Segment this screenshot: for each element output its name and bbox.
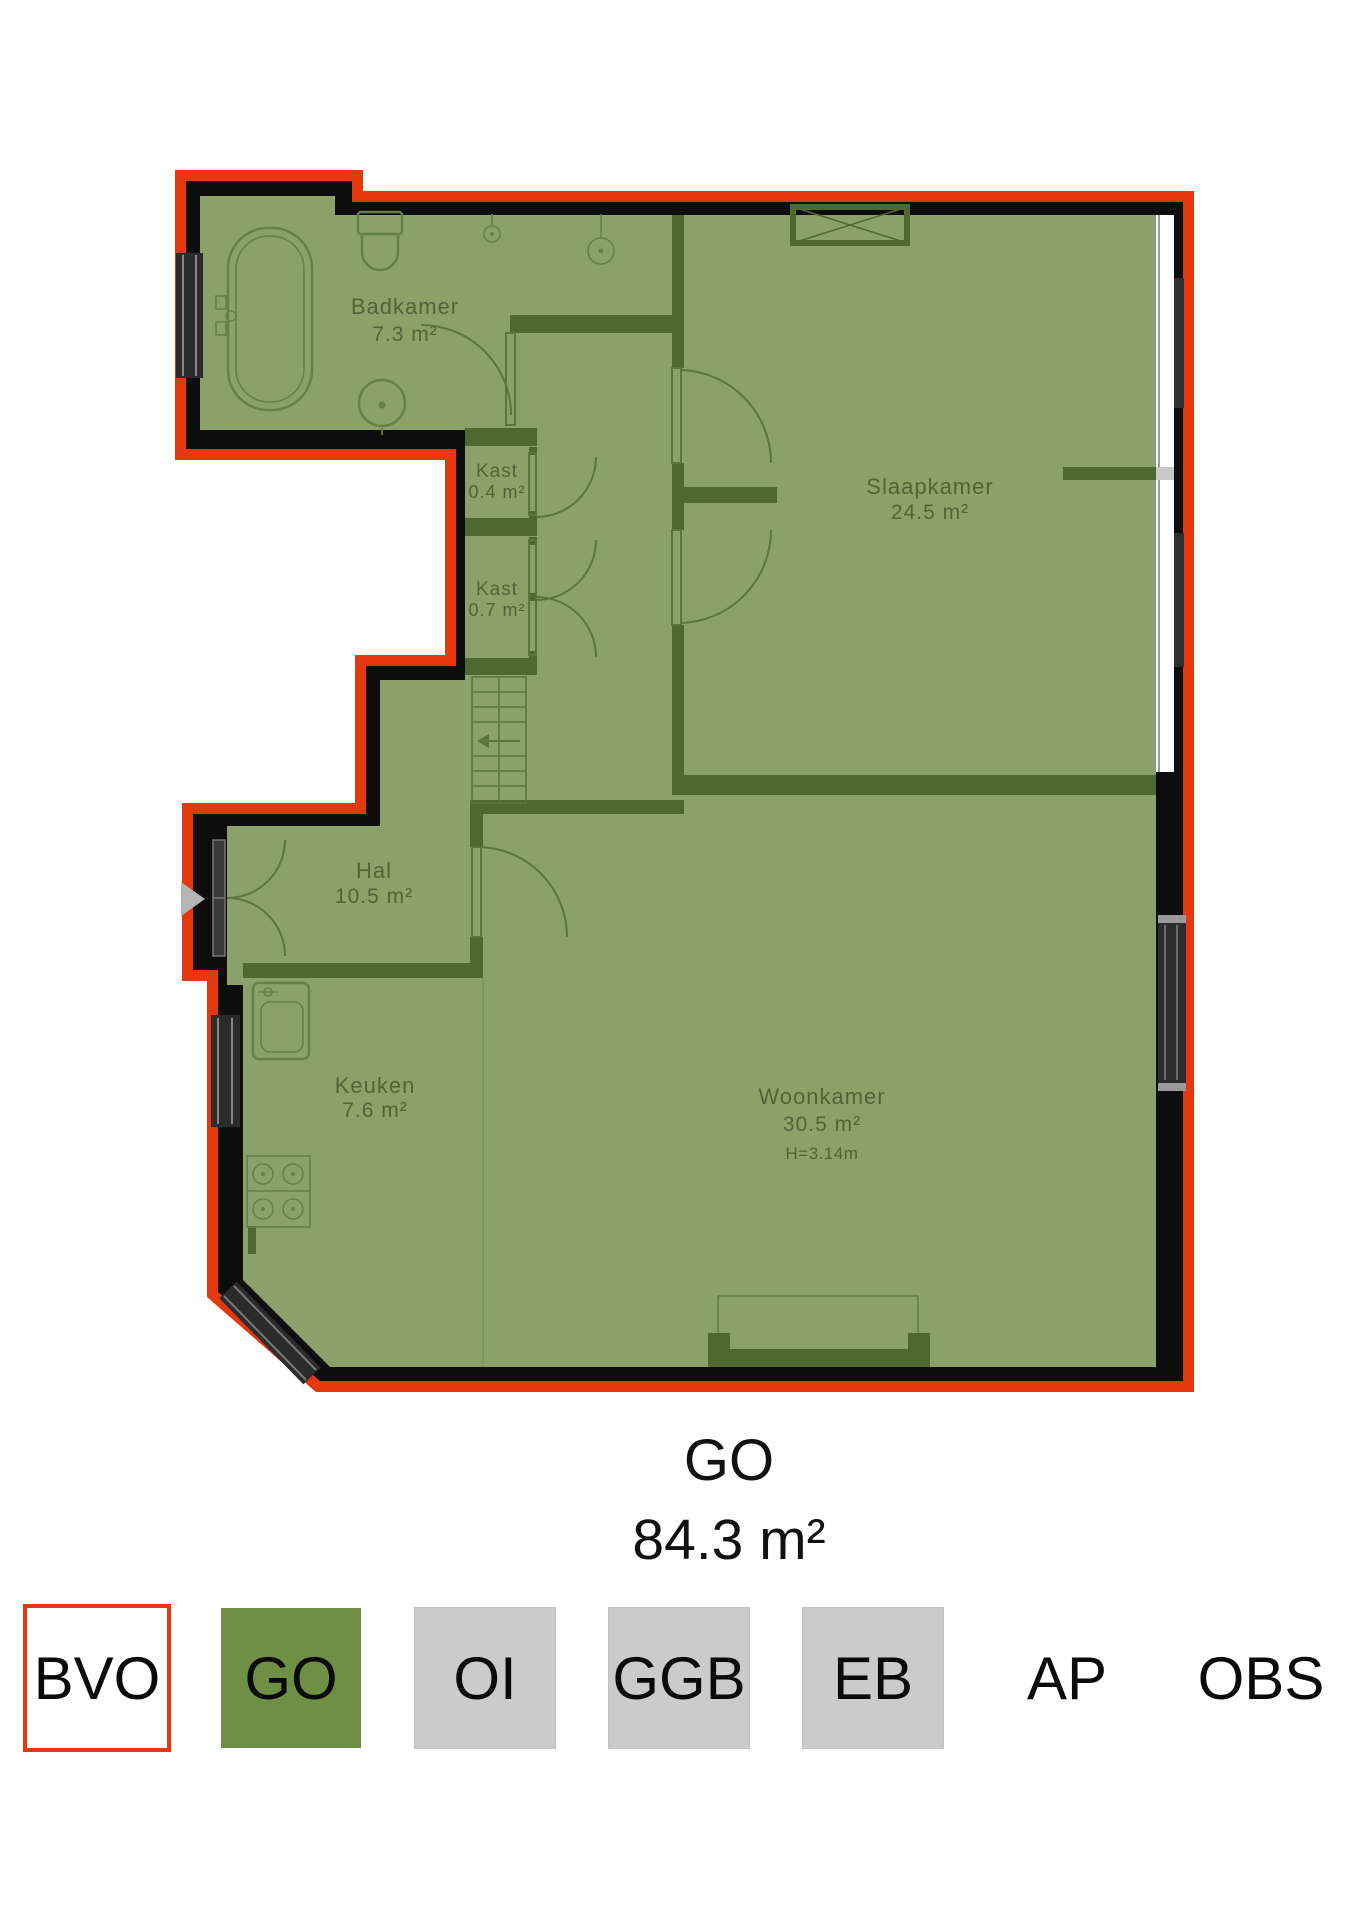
floorplan-page: Badkamer 7.3 m² Kast 0.4 m² Kast 0.7 m² …: [0, 0, 1358, 1920]
svg-text:7.6 m²: 7.6 m²: [342, 1099, 408, 1122]
svg-text:Keuken: Keuken: [335, 1073, 416, 1098]
summary-area: 84.3 m²: [632, 1512, 825, 1569]
legend-item-obs[interactable]: OBS: [1164, 1602, 1358, 1754]
svg-text:30.5 m²: 30.5 m²: [783, 1113, 861, 1136]
legend-item-go[interactable]: GO: [194, 1602, 388, 1754]
legend-swatch-oi: OI: [414, 1607, 556, 1749]
svg-text:24.5 m²: 24.5 m²: [891, 501, 969, 524]
legend-item-eb[interactable]: EB: [776, 1602, 970, 1754]
legend-swatch-go: GO: [221, 1608, 361, 1748]
svg-text:0.7 m²: 0.7 m²: [468, 600, 525, 620]
legend-swatch-ggb: GGB: [608, 1607, 750, 1749]
svg-text:Woonkamer: Woonkamer: [758, 1084, 885, 1109]
svg-text:Kast: Kast: [476, 461, 518, 482]
svg-text:0.4 m²: 0.4 m²: [468, 482, 525, 502]
legend-item-bvo[interactable]: BVO: [0, 1602, 194, 1754]
svg-text:10.5 m²: 10.5 m²: [335, 885, 413, 908]
window-woonkamer-right: [1158, 915, 1186, 1091]
window-badkamer-left: [176, 253, 203, 378]
legend-item-ggb[interactable]: GGB: [582, 1602, 776, 1754]
room-label-kast-boven: Kast 0.4 m²: [468, 461, 525, 502]
summary-code: GO: [632, 1432, 825, 1490]
room-label-kast-onder: Kast 0.7 m²: [468, 579, 525, 620]
svg-text:Hal: Hal: [356, 858, 392, 883]
svg-text:H=3.14m: H=3.14m: [786, 1144, 859, 1163]
legend-item-ap[interactable]: AP: [970, 1602, 1164, 1754]
legend-item-oi[interactable]: OI: [388, 1602, 582, 1754]
legend: BVO GO OI GGB EB AP OBS: [0, 1602, 1358, 1754]
svg-text:Badkamer: Badkamer: [351, 294, 459, 319]
window-sill-gray: [1156, 467, 1174, 480]
room-label-keuken: Keuken 7.6 m²: [335, 1073, 416, 1122]
svg-text:Kast: Kast: [476, 579, 518, 600]
svg-text:7.3 m²: 7.3 m²: [372, 323, 438, 346]
legend-swatch-bvo: BVO: [23, 1604, 171, 1752]
svg-text:Slaapkamer: Slaapkamer: [866, 474, 993, 499]
plan-summary: GO 84.3 m²: [632, 1432, 825, 1569]
legend-swatch-eb: EB: [802, 1607, 944, 1749]
window-keuken-left: [211, 1015, 240, 1127]
floorplan-drawing: Badkamer 7.3 m² Kast 0.4 m² Kast 0.7 m² …: [0, 0, 1358, 1420]
